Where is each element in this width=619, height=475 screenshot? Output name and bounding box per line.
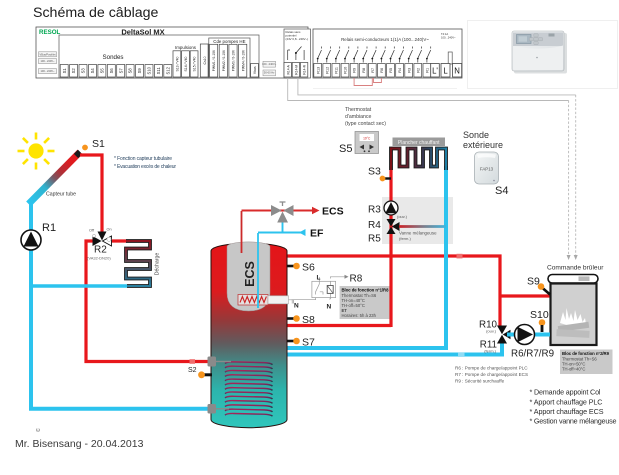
svg-text:R2: R2 — [416, 68, 420, 73]
svg-text:R13: R13 — [316, 67, 320, 74]
svg-text:R3: R3 — [368, 205, 381, 216]
svg-text:R14-M: R14-M — [295, 65, 299, 75]
svg-text:(ouv.): (ouv.) — [397, 214, 408, 219]
svg-text:S1: S1 — [92, 138, 105, 150]
svg-text:S4: S4 — [90, 68, 95, 74]
svg-text:PWM2 / 0-10V: PWM2 / 0-10V — [222, 49, 226, 71]
svg-text:(VA32-DN20): (VA32-DN20) — [87, 256, 111, 261]
svg-text:R10: R10 — [344, 67, 348, 74]
svg-text:Capteur tube: Capteur tube — [46, 192, 76, 198]
svg-text:PWM3 / 0-10V: PWM3 / 0-10V — [232, 49, 236, 71]
svg-text:R11: R11 — [335, 67, 339, 74]
svg-text:R8: R8 — [350, 274, 363, 285]
svg-text:(24V 0,8...240V~): (24V 0,8...240V~) — [286, 37, 309, 41]
svg-text:100...240V~: 100...240V~ — [262, 62, 277, 66]
svg-text:(ferm.): (ferm.) — [484, 349, 496, 354]
svg-text:S12: S12 — [165, 66, 170, 74]
svg-text:S6: S6 — [109, 68, 114, 74]
svg-text:100...240V~: 100...240V~ — [441, 35, 456, 39]
svg-text:Cs10: Cs10 — [203, 56, 207, 64]
svg-text:Bloc de fonction n°2/R9: Bloc de fonction n°2/R9 — [562, 351, 610, 356]
svg-text:R4: R4 — [368, 220, 381, 231]
svg-text:S3: S3 — [81, 68, 86, 74]
svg-text:S9: S9 — [527, 276, 540, 288]
svg-text:S5: S5 — [100, 68, 105, 74]
svg-text:R1: R1 — [42, 222, 56, 234]
svg-text:S14 / V40: S14 / V40 — [184, 56, 188, 71]
svg-text:S10: S10 — [530, 309, 549, 321]
svg-text:Impulsions: Impulsions — [175, 45, 197, 50]
svg-text:R6/R7/R9: R6/R7/R9 — [511, 349, 554, 360]
svg-text:VBus/PowNet: VBus/PowNet — [39, 52, 55, 56]
svg-text:R6: R6 — [380, 68, 384, 73]
svg-text:R2: R2 — [94, 245, 107, 256]
svg-text:R9: R9 — [353, 68, 357, 73]
svg-text:Relais semi-conducteurs 1(1)A: Relais semi-conducteurs 1(1)A (100...240… — [341, 37, 429, 42]
svg-text:S7: S7 — [302, 337, 315, 349]
svg-text:Décharge: Décharge — [155, 253, 161, 276]
svg-text:S11: S11 — [156, 67, 161, 75]
svg-text:R4: R4 — [398, 68, 402, 73]
svg-text:Sonde: Sonde — [463, 130, 489, 140]
svg-text:S8: S8 — [128, 68, 133, 74]
svg-text:Thermostat: Thermostat — [345, 107, 372, 113]
svg-text:T4:1A: T4:1A — [441, 32, 448, 36]
svg-text:R5: R5 — [389, 68, 393, 73]
svg-text:R14-R: R14-R — [303, 64, 307, 74]
svg-text:PWM4 / 0-10V: PWM4 / 0-10V — [241, 49, 245, 71]
svg-text:N: N — [454, 67, 460, 76]
svg-text:Commande brûleur: Commande brûleur — [547, 265, 604, 272]
svg-text:R5: R5 — [368, 234, 381, 245]
svg-text:(ferm.): (ferm.) — [399, 236, 411, 241]
svg-text:PWM1 / 0-10V: PWM1 / 0-10V — [212, 49, 216, 71]
svg-text:S3: S3 — [368, 166, 381, 178]
svg-text:Sondes: Sondes — [103, 54, 124, 61]
svg-text:N: N — [327, 304, 332, 311]
svg-text:* Demande appoint Col: * Demande appoint Col — [530, 388, 601, 397]
svg-text:d'ambiance: d'ambiance — [345, 114, 371, 120]
svg-text:R12: R12 — [325, 67, 329, 74]
svg-text:(type contact sec): (type contact sec) — [345, 121, 386, 127]
svg-text:S15 / V40: S15 / V40 — [193, 56, 197, 71]
svg-text:Mr. Bisensang - 20.04.2013: Mr. Bisensang - 20.04.2013 — [15, 438, 144, 450]
svg-text:* Gestion vanne mélangeuse: * Gestion vanne mélangeuse — [530, 417, 617, 426]
svg-text:On: On — [107, 228, 112, 232]
svg-text:Plancher chauffant: Plancher chauffant — [398, 140, 440, 146]
svg-text:19°C: 19°C — [363, 137, 371, 141]
svg-text:R7 : Pompe de charge/appoint E: R7 : Pompe de charge/appoint ECS — [455, 372, 528, 377]
svg-text:Bloc de fonction n°1/R8: Bloc de fonction n°1/R8 — [342, 288, 390, 293]
svg-text:N: N — [294, 303, 299, 310]
svg-text:R9 : Sécurité surchauffe: R9 : Sécurité surchauffe — [455, 379, 505, 384]
svg-text:EF: EF — [310, 228, 324, 240]
svg-text:ECS: ECS — [243, 261, 257, 287]
svg-text:FAP13: FAP13 — [480, 167, 494, 172]
svg-text:S10: S10 — [147, 66, 152, 74]
svg-text:Horaires: 5h à 23h: Horaires: 5h à 23h — [342, 313, 377, 318]
svg-text:ω: ω — [36, 428, 40, 434]
svg-text:R14-A: R14-A — [286, 64, 290, 74]
svg-text:S2: S2 — [71, 68, 76, 74]
svg-text:R8: R8 — [362, 68, 366, 73]
svg-text:S9: S9 — [137, 68, 142, 74]
svg-text:50-60 Hz: 50-60 Hz — [264, 71, 275, 75]
svg-text:Vanne mélangeuse: Vanne mélangeuse — [399, 231, 437, 236]
svg-text:S1: S1 — [62, 68, 67, 74]
svg-text:Cde pompes HE: Cde pompes HE — [213, 39, 245, 44]
svg-text:R7: R7 — [371, 68, 375, 73]
svg-text:* Evacuation excès de chaleur: * Evacuation excès de chaleur — [114, 164, 176, 170]
svg-text:R3: R3 — [407, 68, 411, 73]
svg-text:S4: S4 — [495, 185, 508, 197]
svg-text:RESOL: RESOL — [39, 29, 61, 36]
svg-text:extérieure: extérieure — [463, 140, 503, 150]
svg-text:R6 : Pompe de charge/appoint P: R6 : Pompe de charge/appoint PLC — [455, 366, 528, 371]
svg-text:S8: S8 — [302, 314, 315, 326]
svg-text:L: L — [443, 67, 448, 76]
svg-text:Vbas: Vbas — [253, 66, 257, 74]
svg-text:S2: S2 — [188, 367, 197, 374]
svg-text:S13 / V40: S13 / V40 — [176, 56, 180, 71]
svg-text:* Apport chauffage PLC: * Apport chauffage PLC — [530, 398, 603, 407]
svg-text:S6: S6 — [302, 262, 315, 274]
svg-text:* Apport chauffage ECS: * Apport chauffage ECS — [530, 407, 604, 416]
svg-text:(ouv.): (ouv.) — [486, 329, 497, 334]
svg-text:Schéma de câblage: Schéma de câblage — [33, 5, 159, 21]
svg-text:S7: S7 — [118, 68, 123, 74]
svg-text:S5: S5 — [339, 143, 352, 155]
svg-text:L: L — [317, 275, 321, 282]
svg-text:R1: R1 — [426, 68, 430, 73]
svg-text:L': L' — [432, 67, 438, 76]
svg-text:100...240V~: 100...240V~ — [40, 59, 55, 63]
svg-text:TH-off=40°C: TH-off=40°C — [562, 367, 585, 372]
svg-text:* Fonction capteur tubulaire: * Fonction capteur tubulaire — [114, 156, 172, 162]
svg-text:ECS: ECS — [322, 206, 344, 218]
svg-text:100...240V~: 100...240V~ — [40, 69, 55, 73]
